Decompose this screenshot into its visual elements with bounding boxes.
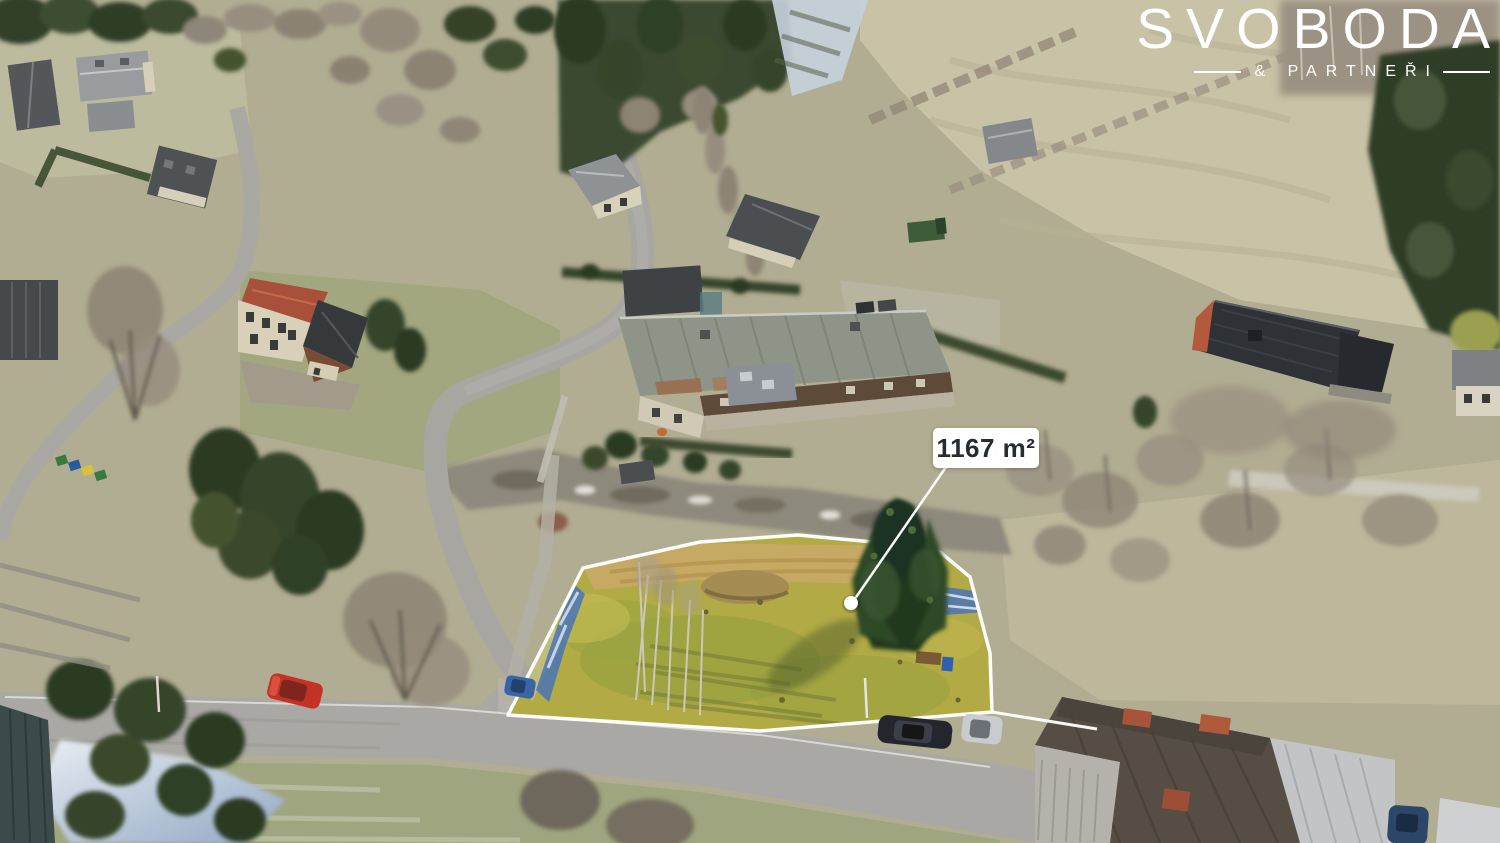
house-c: [87, 100, 135, 132]
right-edge-house: [1452, 350, 1500, 416]
tagline-rule-left: [1194, 71, 1241, 73]
brand-tagline-row: & PARTNEŘI: [1136, 63, 1490, 81]
brand-name: SVOBODA: [1136, 0, 1500, 63]
house-b: [76, 50, 156, 101]
brand-logo: SVOBODA & PARTNEŘI: [1136, 0, 1490, 81]
plot-area-value: 1167 m²: [937, 433, 1036, 464]
brand-tagline: & PARTNEŘI: [1254, 63, 1439, 81]
tagline-rule-right: [1443, 71, 1490, 73]
house-a: [8, 59, 61, 130]
house-e: [0, 280, 58, 360]
silver-car: [961, 713, 1004, 745]
blue-car-bottom-right: [1387, 805, 1430, 843]
aerial-scene: [0, 0, 1500, 843]
plot-area-badge: 1167 m²: [933, 428, 1039, 468]
marker-dot-core: [844, 596, 858, 610]
aerial-listing-photo: 1167 m² SVOBODA & PARTNEŘI: [0, 0, 1500, 843]
